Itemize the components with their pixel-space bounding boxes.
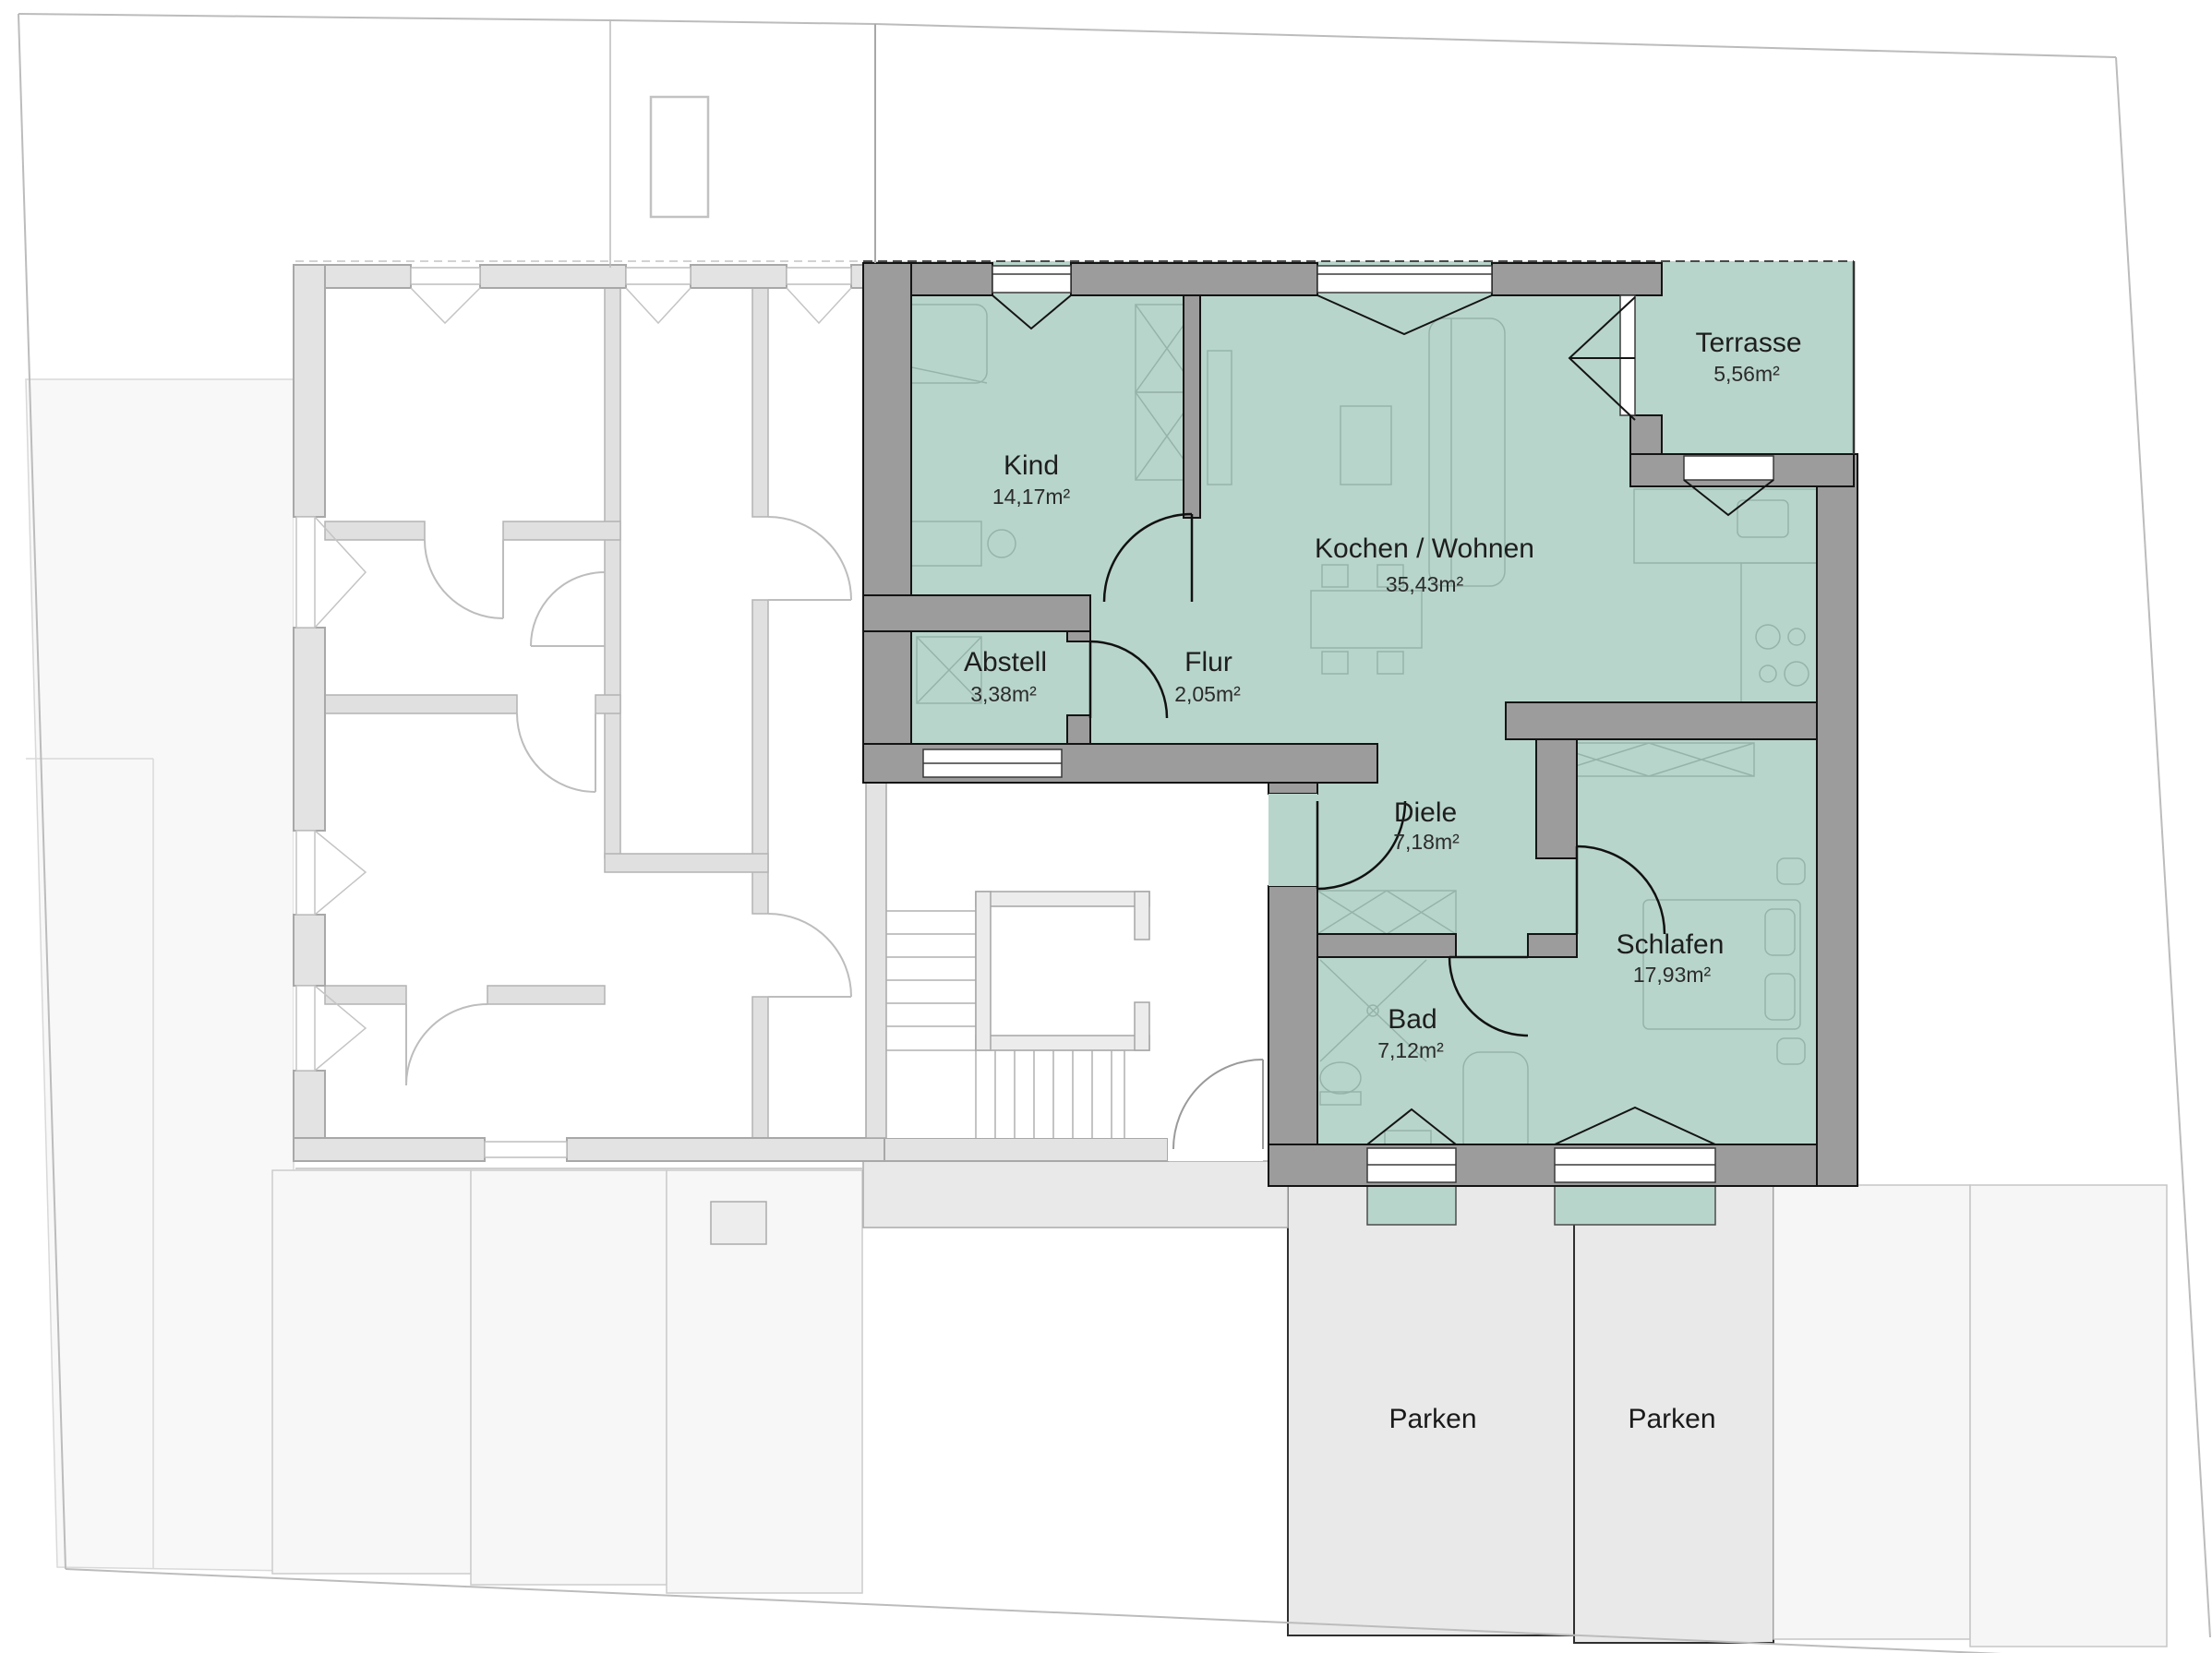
schlafen-top-wall	[1506, 702, 1817, 739]
stairwell	[866, 783, 1268, 1161]
right-wall	[1817, 454, 1857, 1186]
room-area-flur: 2,05m²	[1174, 682, 1241, 706]
room-label-schlafen: Schlafen	[1617, 929, 1725, 960]
room-label-diele: Diele	[1394, 797, 1457, 828]
parking-stall-unlabeled-5	[1970, 1185, 2167, 1647]
parking-stall-unlabeled-4	[1773, 1185, 1970, 1639]
diele-left-wall	[1268, 886, 1317, 1144]
room-label-abstell: Abstell	[964, 647, 1047, 677]
chimney-block	[651, 97, 708, 217]
garden-area-left	[26, 379, 294, 1571]
room-area-abstell: 3,38m²	[970, 682, 1037, 706]
bad-window-sill	[1367, 1186, 1456, 1225]
schlafen-window-sill	[1555, 1186, 1715, 1225]
floor-plan-canvas: Kind 14,17m² Kochen / Wohnen 35,43m² Abs…	[0, 0, 2212, 1653]
room-area-diele: 7,18m²	[1393, 830, 1460, 854]
neighbor-bottom-wall	[294, 1138, 485, 1161]
parking-stall-unlabeled-2	[471, 1170, 667, 1585]
room-area-kind: 14,17m²	[992, 485, 1071, 509]
room-label-flur: Flur	[1184, 647, 1232, 677]
parking-label-1: Parken	[1389, 1404, 1476, 1434]
entry-step	[711, 1202, 766, 1244]
abstell-top-wall	[863, 595, 1090, 631]
neighbor-left-wall	[294, 265, 325, 517]
left-wall	[863, 263, 911, 783]
room-area-kochen-wohnen: 35,43m²	[1386, 572, 1464, 596]
schlafen-divider-wall	[1536, 739, 1577, 858]
room-area-bad: 7,12m²	[1377, 1038, 1444, 1062]
floor-plan-drawing: Kind 14,17m² Kochen / Wohnen 35,43m² Abs…	[0, 0, 2212, 1653]
room-label-kochen-wohnen: Kochen / Wohnen	[1315, 533, 1534, 564]
room-area-terrasse: 5,56m²	[1713, 362, 1780, 386]
kind-divider-wall	[1184, 295, 1200, 518]
room-area-schlafen: 17,93m²	[1633, 963, 1712, 987]
room-label-kind: Kind	[1004, 450, 1059, 481]
room-label-bad: Bad	[1388, 1004, 1437, 1035]
parking-stall-unlabeled-1	[272, 1170, 471, 1574]
parking-label-2: Parken	[1628, 1404, 1715, 1434]
bad-top-wall	[1317, 934, 1456, 957]
parking-area	[272, 1170, 2167, 1647]
room-label-terrasse: Terrasse	[1695, 328, 1801, 358]
